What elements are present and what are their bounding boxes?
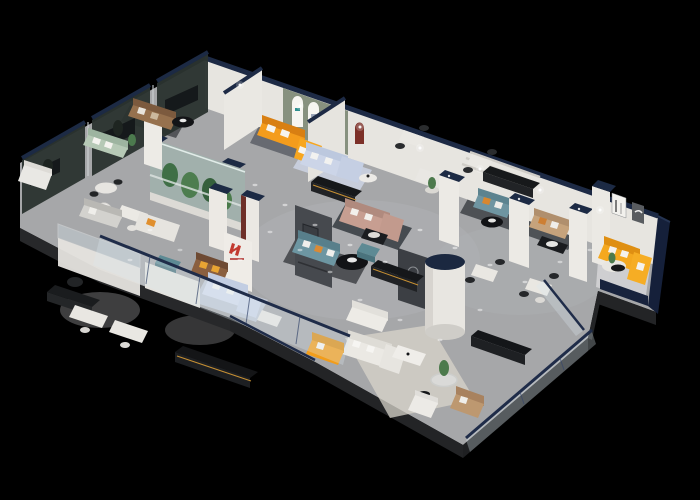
scene-svg	[0, 0, 700, 500]
floor-plant	[128, 134, 136, 146]
plant-case-plant	[181, 172, 199, 198]
round-table-duo	[611, 265, 625, 272]
desk-chair	[80, 327, 90, 333]
dining-chair	[114, 179, 123, 185]
spotlight	[588, 249, 593, 251]
spotlight	[478, 309, 483, 311]
spotlight	[488, 264, 493, 266]
table-tray	[546, 241, 558, 247]
spotlight	[178, 249, 183, 251]
spotlight	[348, 244, 353, 246]
column	[439, 175, 459, 247]
spotlight	[523, 281, 528, 283]
spotlight	[328, 271, 333, 273]
dining-chair	[487, 149, 497, 155]
floor-plant	[609, 253, 616, 264]
table-vase	[407, 353, 410, 356]
wall-glint	[599, 209, 602, 212]
cylinder-column-base	[425, 324, 465, 340]
column	[509, 198, 529, 268]
spotlight	[418, 229, 423, 231]
round-dining-table	[95, 183, 117, 194]
wall-glint	[578, 208, 580, 210]
wall-glint	[359, 126, 362, 129]
dining-chair	[395, 143, 405, 149]
cylinder-column-cap	[425, 254, 465, 270]
wall-glint	[518, 198, 520, 200]
spotlight	[253, 184, 258, 186]
wall-glint	[448, 175, 450, 177]
column	[569, 208, 587, 282]
wall-glint	[419, 147, 422, 150]
spotlight	[383, 261, 388, 263]
desk-chair	[67, 277, 83, 287]
dining-chair	[465, 277, 475, 283]
glass-room-plant	[113, 120, 123, 136]
wall-glint	[479, 168, 482, 171]
spotlight	[398, 319, 403, 321]
spotlight	[148, 229, 153, 231]
cylinder-column-shade	[425, 262, 433, 332]
showroom-3d-render	[0, 0, 700, 500]
wall-glint	[239, 84, 242, 87]
desk-chair	[120, 342, 130, 348]
spotlight	[283, 204, 288, 206]
spotlight	[268, 231, 273, 233]
spotlight	[238, 259, 243, 261]
dining-chair	[463, 167, 473, 173]
spotlight	[298, 249, 303, 251]
floor-plant	[428, 177, 436, 189]
spotlight	[358, 299, 363, 301]
table-tray	[488, 219, 496, 223]
spotlight	[438, 339, 443, 341]
spotlight	[558, 261, 563, 263]
table-tray	[180, 119, 187, 123]
dining-chair	[519, 291, 529, 297]
spotlight	[453, 247, 458, 249]
dining-chair	[495, 259, 505, 265]
table-tray	[368, 232, 380, 238]
dining-chair	[535, 297, 545, 303]
wall-glint	[299, 105, 302, 108]
spotlight	[313, 224, 318, 226]
dining-chair	[419, 125, 429, 131]
wall-glint	[539, 189, 542, 192]
dining-chair	[90, 191, 99, 197]
dining-chair	[549, 273, 559, 279]
table-tray	[347, 258, 357, 263]
table-vase	[367, 175, 370, 178]
spotlight	[128, 259, 133, 261]
floor-plant	[439, 360, 449, 376]
